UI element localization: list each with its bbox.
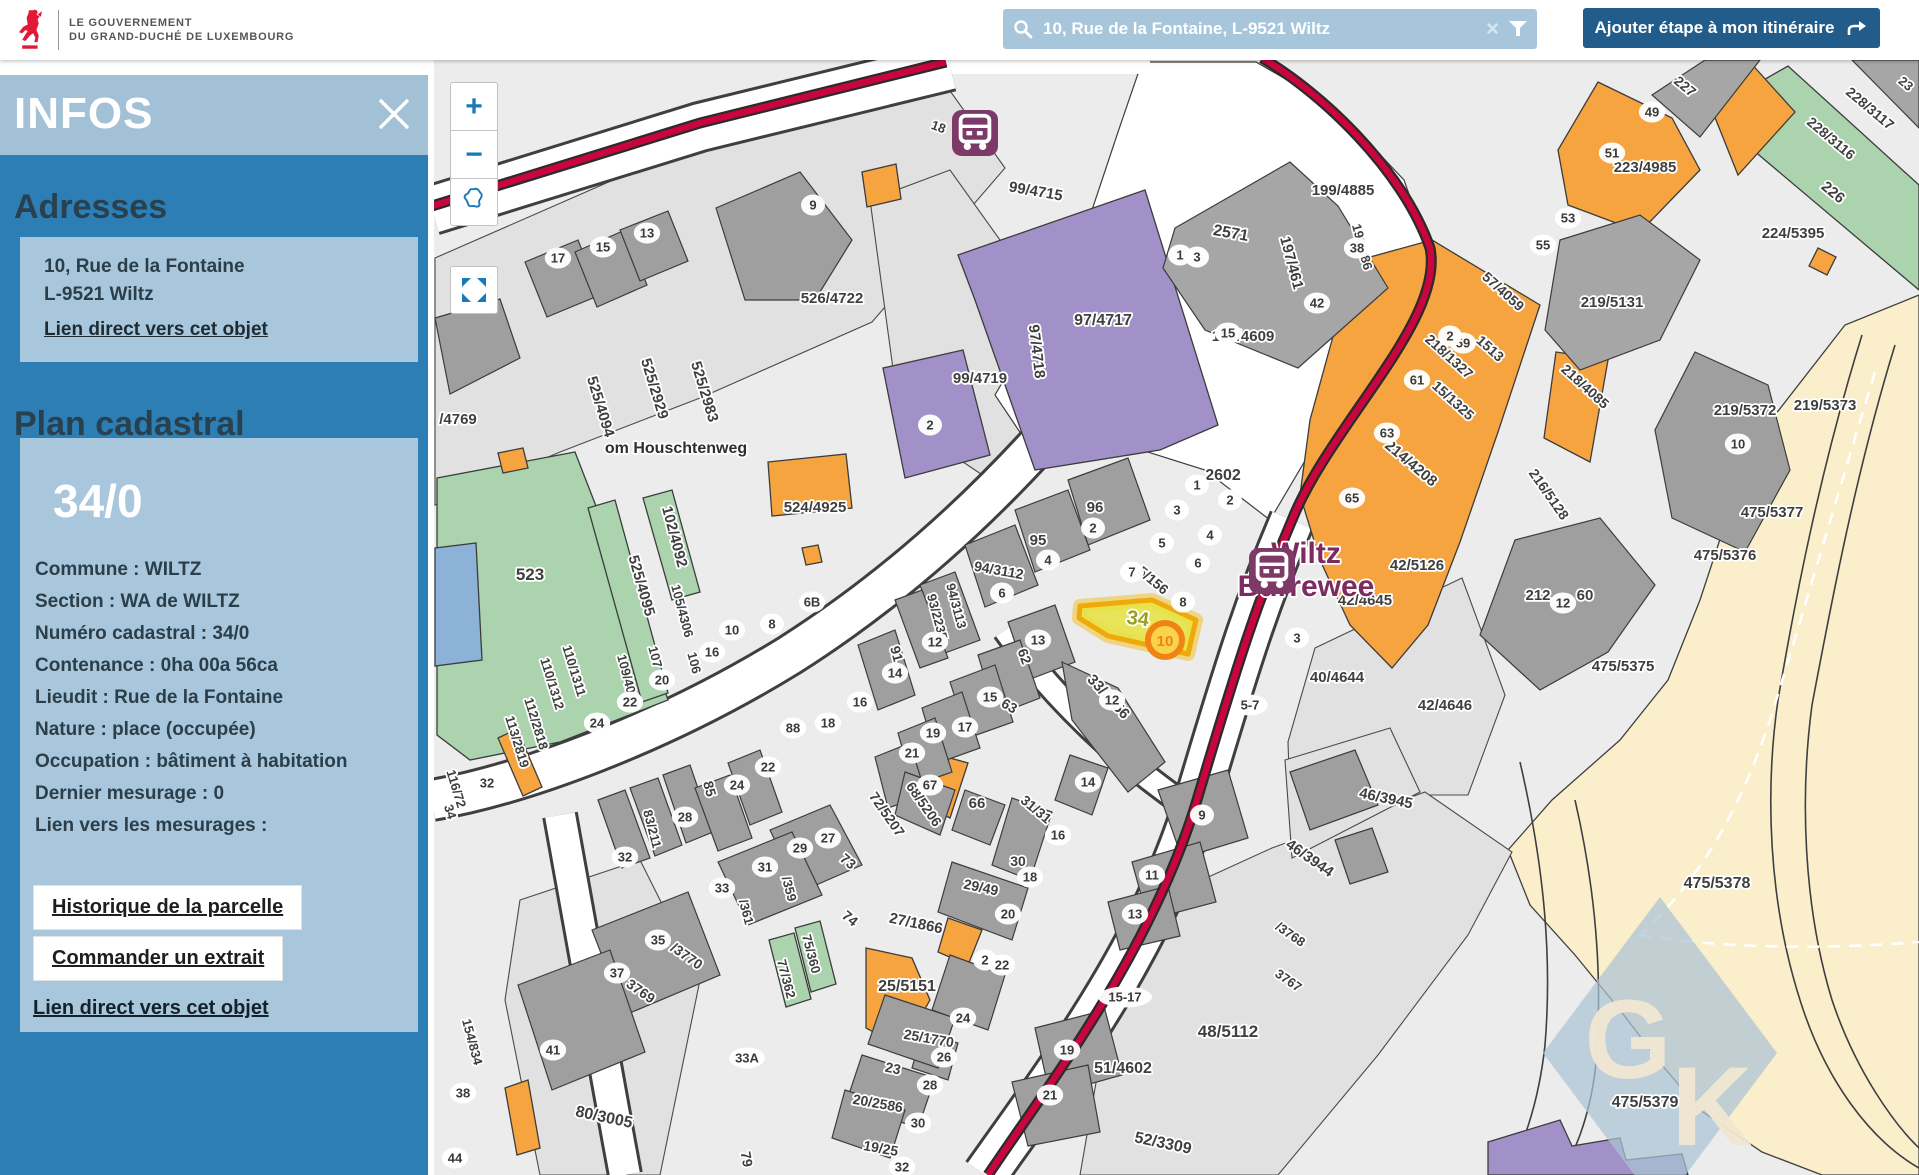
house-number-badge: 28	[917, 1075, 943, 1096]
adresses-heading: Adresses	[14, 188, 167, 227]
svg-text:20: 20	[1001, 907, 1015, 922]
bus-stop-icon[interactable]	[952, 110, 998, 156]
svg-text:7: 7	[1128, 565, 1135, 580]
map-parcel-label: 99/4719	[953, 370, 1007, 387]
svg-text:11: 11	[1145, 868, 1159, 883]
house-number-badge: 6	[1186, 553, 1210, 574]
house-number-badge: 13	[1025, 630, 1051, 651]
map-parcel-label: 526/4722	[801, 290, 864, 307]
map-parcel-label: 199/4885	[1312, 182, 1375, 199]
map-container: G K 526/4722525/4094525/2929525/2983/476…	[434, 60, 1919, 1175]
address-card: 10, Rue de la Fontaine L-9521 Wiltz Lien…	[20, 237, 418, 362]
map-parcel-label: 96	[1087, 499, 1104, 516]
logo-text: LE GOUVERNEMENT DU GRAND-DUCHÉ DE LUXEMB…	[69, 16, 294, 44]
parcel-direct-link[interactable]: Lien direct vers cet objet	[33, 997, 269, 1020]
svg-text:2: 2	[981, 953, 988, 968]
house-number-badge: 38	[450, 1083, 476, 1104]
cadastral-map[interactable]: G K 526/4722525/4094525/2929525/2983/476…	[434, 60, 1919, 1175]
map-parcel-label: 51/4602	[1094, 1060, 1152, 1077]
close-x-icon	[374, 94, 414, 134]
luxembourg-outline-icon	[459, 186, 489, 218]
svg-text:9: 9	[1198, 808, 1205, 823]
house-number-badge: 17	[952, 717, 978, 738]
svg-text:13: 13	[1031, 633, 1045, 648]
map-parcel-label: 475/5375	[1592, 658, 1655, 675]
svg-text:55: 55	[1536, 238, 1550, 253]
house-number-badge: 3	[1185, 247, 1209, 268]
svg-text:16: 16	[705, 645, 719, 660]
map-parcel-label: 224/5395	[1762, 225, 1825, 242]
watermark-letter-g: G	[1584, 977, 1671, 1102]
svg-text:35: 35	[651, 933, 665, 948]
svg-text:67: 67	[923, 778, 937, 793]
detail-row: Nature : place (occupée)	[35, 714, 403, 746]
map-parcel-label: 2602	[1205, 467, 1241, 484]
map-parcel-label: 25/5151	[878, 978, 936, 995]
house-number-badge: 10	[1725, 434, 1751, 455]
map-parcel-label: 97/4717	[1074, 312, 1132, 329]
detail-row: Lien vers les mesurages :	[35, 810, 403, 842]
house-number-badge: 15	[1215, 323, 1241, 344]
svg-text:1: 1	[1176, 248, 1183, 263]
svg-text:22: 22	[995, 958, 1009, 973]
svg-text:3: 3	[1193, 250, 1200, 265]
map-parcel-label: 475/5377	[1741, 504, 1804, 521]
svg-text:51: 51	[1605, 146, 1619, 161]
svg-text:12: 12	[1105, 693, 1119, 708]
house-number-badge: 14	[882, 663, 908, 684]
clear-search-icon[interactable]: ×	[1486, 19, 1499, 39]
map-parcel-label: 475/5379	[1612, 1094, 1679, 1111]
svg-text:61: 61	[1410, 373, 1424, 388]
detail-row: Commune : WILTZ	[35, 554, 403, 586]
map-parcel-label: 523	[516, 565, 544, 584]
house-number-badge: 18	[815, 713, 841, 734]
svg-text:44: 44	[448, 1151, 463, 1166]
svg-text:10: 10	[1731, 437, 1745, 452]
address-line-2: L-9521 Wiltz	[44, 281, 394, 309]
svg-text:28: 28	[678, 810, 692, 825]
house-number-badge: 24	[584, 713, 610, 734]
svg-text:17: 17	[551, 251, 565, 266]
svg-text:15: 15	[1221, 326, 1235, 341]
house-number-badge: 10	[719, 620, 745, 641]
house-number-badge: 32	[474, 773, 500, 794]
svg-text:6B: 6B	[804, 595, 821, 610]
house-number-badge: 27	[815, 828, 841, 849]
order-extract-button[interactable]: Commander un extrait	[33, 936, 283, 981]
zoom-in-button[interactable]: +	[450, 82, 498, 130]
add-route-step-button[interactable]: Ajouter étape à mon itinéraire	[1583, 8, 1880, 48]
house-number-badge: 42	[1304, 293, 1330, 314]
svg-text:18: 18	[821, 716, 835, 731]
svg-text:33: 33	[715, 881, 729, 896]
house-number-badge: 35	[645, 930, 671, 951]
svg-text:49: 49	[1645, 105, 1659, 120]
svg-text:17: 17	[958, 720, 972, 735]
svg-text:19: 19	[1060, 1043, 1074, 1058]
house-number-badge: 19	[920, 723, 946, 744]
geoportal-app: LE GOUVERNEMENT DU GRAND-DUCHÉ DE LUXEMB…	[0, 0, 1919, 1175]
svg-text:1: 1	[1193, 478, 1200, 493]
house-number-badge: 19	[1054, 1040, 1080, 1061]
map-parcel-label: 40/4644	[1310, 669, 1365, 686]
detail-row: Lieudit : Rue de la Fontaine	[35, 682, 403, 714]
house-number-badge: 1	[1185, 475, 1209, 496]
government-logo: LE GOUVERNEMENT DU GRAND-DUCHÉ DE LUXEMB…	[14, 8, 294, 52]
svg-text:6: 6	[998, 586, 1005, 601]
house-number-badge: 16	[699, 642, 725, 663]
house-number-badge: 6	[990, 583, 1014, 604]
map-parcel-label: 212	[1525, 587, 1550, 604]
map-parcel-label: 475/5376	[1694, 547, 1757, 564]
house-number-badge: 3	[1165, 500, 1189, 521]
house-number-badge: 55	[1530, 235, 1556, 256]
search-icon	[1013, 19, 1033, 39]
svg-text:31: 31	[758, 860, 772, 875]
svg-text:27: 27	[821, 831, 835, 846]
house-number-badge: 8	[1171, 592, 1195, 613]
svg-text:22: 22	[623, 695, 637, 710]
house-number-badge: 18	[1017, 867, 1043, 888]
svg-text:14: 14	[1081, 775, 1096, 790]
house-number-badge: 41	[540, 1040, 566, 1061]
svg-text:32: 32	[480, 776, 494, 791]
svg-text:3: 3	[1173, 503, 1180, 518]
map-parcel-label: 95	[1030, 532, 1047, 549]
map-parcel-label: 30	[1010, 853, 1026, 869]
house-number-badge: 26	[931, 1047, 957, 1068]
svg-text:3: 3	[1293, 631, 1300, 646]
svg-text:15: 15	[983, 690, 997, 705]
map-parcel-label: 219/5131	[1581, 294, 1644, 311]
house-number-badge: 16	[847, 692, 873, 713]
zoom-out-button[interactable]: −	[450, 130, 498, 178]
close-panel-button[interactable]	[372, 93, 416, 137]
svg-text:29: 29	[793, 841, 807, 856]
map-parcel-label: 475/5378	[1684, 875, 1751, 892]
map-parcel-label: 66	[969, 795, 986, 812]
map-parcel-label: 219/5372	[1714, 402, 1777, 419]
house-number-badge: 16	[1045, 825, 1071, 846]
house-number-badge: 9	[1190, 805, 1214, 826]
svg-text:24: 24	[590, 716, 605, 731]
house-number-badge: 12	[1099, 690, 1125, 711]
svg-text:13: 13	[1128, 907, 1142, 922]
map-parcel-label: om Houschtenweg	[605, 440, 747, 457]
svg-text:33A: 33A	[735, 1051, 759, 1066]
search-input[interactable]: 10, Rue de la Fontaine, L-9521 Wiltz ×	[1003, 9, 1537, 49]
house-number-badge: 31	[752, 857, 778, 878]
map-parcel-label: 42/5126	[1390, 557, 1444, 574]
svg-text:2: 2	[1089, 521, 1096, 536]
house-number-badge: 24	[724, 775, 750, 796]
svg-text:12: 12	[928, 635, 942, 650]
house-number-badge: 12	[922, 632, 948, 653]
address-line-1: 10, Rue de la Fontaine	[44, 253, 394, 281]
svg-text:14: 14	[888, 666, 903, 681]
map-parcel-label: 60	[1577, 587, 1594, 604]
svg-text:38: 38	[1350, 241, 1364, 256]
house-number-badge: 63	[1374, 423, 1400, 444]
parcel-history-button[interactable]: Historique de la parcelle	[33, 885, 302, 930]
infos-panel: INFOS Adresses 10, Rue de la Fontaine L-…	[0, 75, 428, 1175]
house-number-badge: 8	[760, 614, 784, 635]
house-number-badge: 11	[1139, 865, 1165, 886]
route-arrow-icon	[1846, 19, 1868, 37]
house-number-badge: 14	[1075, 772, 1101, 793]
house-number-badge: 61	[1404, 370, 1430, 391]
svg-text:19: 19	[926, 726, 940, 741]
svg-text:24: 24	[730, 778, 745, 793]
house-number-badge: 29	[787, 838, 813, 859]
top-bar: LE GOUVERNEMENT DU GRAND-DUCHÉ DE LUXEMB…	[0, 0, 1919, 60]
house-number-badge: 22	[617, 692, 643, 713]
house-number-badge: 2	[918, 415, 942, 436]
map-parcel-label: 42/4646	[1418, 697, 1472, 714]
svg-text:4: 4	[1044, 553, 1052, 568]
house-number-badge: 53	[1555, 208, 1581, 229]
svg-text:18: 18	[1023, 870, 1037, 885]
detail-row: Occupation : bâtiment à habitation	[35, 746, 403, 778]
house-number-badge: 67	[917, 775, 943, 796]
detail-row: Numéro cadastral : 34/0	[35, 618, 403, 650]
svg-text:10: 10	[725, 623, 739, 638]
svg-text:21: 21	[1043, 1088, 1057, 1103]
house-number-badge: 32	[612, 847, 638, 868]
svg-text:6: 6	[1194, 556, 1201, 571]
road-top-strip	[940, 60, 1150, 74]
fullscreen-button[interactable]	[450, 266, 498, 314]
detail-row: Contenance : 0ha 00a 56ca	[35, 650, 403, 682]
svg-text:32: 32	[895, 1160, 909, 1175]
house-number-badge: 7	[1120, 562, 1144, 583]
svg-text:16: 16	[853, 695, 867, 710]
house-number-badge: 44	[442, 1148, 468, 1169]
house-number-badge: 21	[1037, 1085, 1063, 1106]
svg-text:12: 12	[1556, 596, 1570, 611]
svg-text:28: 28	[923, 1078, 937, 1093]
house-number-badge: 3	[1285, 628, 1309, 649]
svg-text:2: 2	[926, 418, 933, 433]
svg-text:15-17: 15-17	[1108, 990, 1141, 1005]
detail-row: Dernier mesurage : 0	[35, 778, 403, 810]
detail-row: Section : WA de WILTZ	[35, 586, 403, 618]
house-number-badge: 4	[1198, 525, 1222, 546]
house-number-badge: 13	[634, 223, 660, 244]
map-parcel-label: /4769	[439, 411, 477, 428]
map-parcel-label: 79	[738, 1150, 756, 1168]
svg-text:13: 13	[640, 226, 654, 241]
house-number-badge: 30	[905, 1113, 931, 1134]
house-number-badge: 33A	[729, 1048, 765, 1069]
svg-text:37: 37	[610, 966, 624, 981]
svg-text:9: 9	[809, 198, 816, 213]
svg-text:21: 21	[905, 746, 919, 761]
filter-funnel-icon[interactable]	[1509, 21, 1527, 37]
house-number-badge: 21	[899, 743, 925, 764]
house-number-badge: 65	[1339, 488, 1365, 509]
house-number-badge: 5-7	[1232, 695, 1268, 716]
svg-text:88: 88	[786, 721, 800, 736]
parcel-id: 34/0	[53, 474, 403, 528]
house-number-badge: 28	[672, 807, 698, 828]
svg-text:8: 8	[1179, 595, 1186, 610]
house-number-badge: 13	[1122, 904, 1148, 925]
house-number-badge: 15	[590, 237, 616, 258]
svg-text:53: 53	[1561, 211, 1575, 226]
blue-parcel	[435, 543, 482, 666]
svg-text:63: 63	[1380, 426, 1394, 441]
house-number-badge: 6B	[799, 592, 825, 613]
house-number-badge: 15-17	[1098, 987, 1152, 1008]
address-marker[interactable]: 10	[1148, 623, 1182, 657]
house-number-badge: 22	[755, 757, 781, 778]
svg-text:32: 32	[618, 850, 632, 865]
map-parcel-label: 219/5373	[1794, 397, 1857, 414]
svg-text:65: 65	[1345, 491, 1359, 506]
search-value[interactable]: 10, Rue de la Fontaine, L-9521 Wiltz	[1043, 19, 1476, 39]
svg-text:20: 20	[655, 673, 669, 688]
house-number-badge: 15	[977, 687, 1003, 708]
house-number-badge: 17	[545, 248, 571, 269]
svg-text:26: 26	[937, 1050, 951, 1065]
house-number-badge: 20	[649, 670, 675, 691]
svg-text:41: 41	[546, 1043, 560, 1058]
house-number-badge: 5	[1150, 533, 1174, 554]
fullscreen-icon	[459, 275, 489, 305]
svg-text:5-7: 5-7	[1241, 698, 1260, 713]
house-number-badge: 24	[950, 1008, 976, 1029]
svg-text:38: 38	[456, 1086, 470, 1101]
svg-text:8: 8	[768, 617, 775, 632]
logo-divider	[58, 10, 59, 50]
house-number-badge: 37	[604, 963, 630, 984]
map-parcel-label: 223/4985	[1614, 159, 1677, 176]
house-number-badge: 88	[780, 718, 806, 739]
map-parcel-label: 48/5112	[1198, 1022, 1259, 1041]
map-parcel-label: 524/4925	[784, 499, 847, 516]
svg-text:16: 16	[1051, 828, 1065, 843]
watermark-letter-k: K	[1672, 1044, 1753, 1169]
marker-label: 10	[1157, 633, 1174, 650]
address-direct-link[interactable]: Lien direct vers cet objet	[44, 319, 268, 341]
house-number-badge: 22	[989, 955, 1015, 976]
map-parcel-label: 34	[1125, 607, 1151, 632]
house-number-badge: 2	[1081, 518, 1105, 539]
house-number-badge: 49	[1639, 102, 1665, 123]
bus-stop-icon[interactable]	[1249, 548, 1295, 594]
panel-title: INFOS	[14, 89, 153, 139]
svg-text:2: 2	[1226, 493, 1233, 508]
svg-text:2: 2	[1446, 329, 1453, 344]
house-number-badge: 20	[995, 904, 1021, 925]
add-route-step-label: Ajouter étape à mon itinéraire	[1595, 18, 1835, 38]
house-number-badge: 2	[1438, 326, 1462, 347]
svg-text:15: 15	[596, 240, 610, 255]
logo-line-2: DU GRAND-DUCHÉ DE LUXEMBOURG	[69, 30, 294, 44]
parcel-details: Commune : WILTZSection : WA de WILTZNumé…	[35, 554, 403, 842]
svg-text:22: 22	[761, 760, 775, 775]
svg-text:5: 5	[1158, 536, 1165, 551]
svg-text:30: 30	[911, 1116, 925, 1131]
infos-panel-header: INFOS	[0, 75, 428, 155]
house-number-badge: 2	[1218, 490, 1242, 511]
svg-text:4: 4	[1206, 528, 1214, 543]
house-number-badge: 33	[709, 878, 735, 899]
house-number-badge: 38	[1344, 238, 1370, 259]
house-number-badge: 9	[801, 195, 825, 216]
full-extent-button[interactable]	[450, 178, 498, 226]
house-number-badge: 12	[1550, 593, 1576, 614]
house-number-badge: 51	[1599, 143, 1625, 164]
svg-text:42: 42	[1310, 296, 1324, 311]
house-number-badge: 4	[1036, 550, 1060, 571]
svg-text:24: 24	[956, 1011, 971, 1026]
luxembourg-lion-icon	[14, 8, 48, 52]
logo-line-1: LE GOUVERNEMENT	[69, 16, 294, 30]
